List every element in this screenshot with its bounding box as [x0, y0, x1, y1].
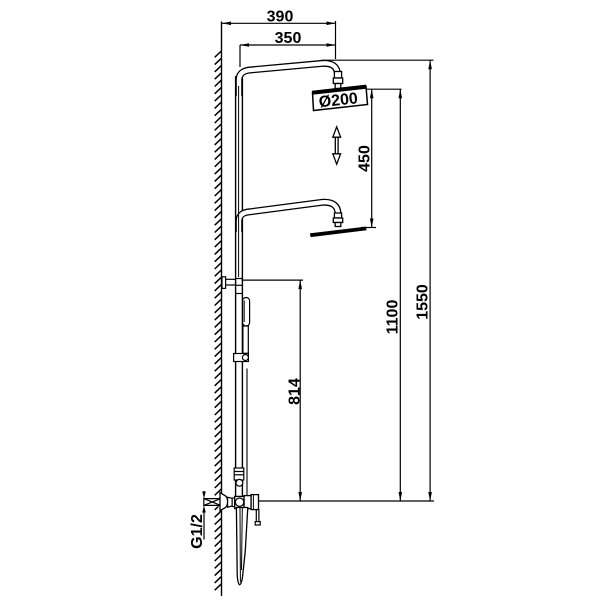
svg-text:1100: 1100: [385, 300, 402, 335]
svg-text:G1/2: G1/2: [189, 514, 206, 549]
svg-text:350: 350: [275, 30, 302, 47]
svg-text:814: 814: [287, 378, 304, 405]
svg-text:450: 450: [356, 145, 373, 172]
svg-text:390: 390: [267, 9, 294, 26]
svg-text:1550: 1550: [415, 284, 432, 320]
